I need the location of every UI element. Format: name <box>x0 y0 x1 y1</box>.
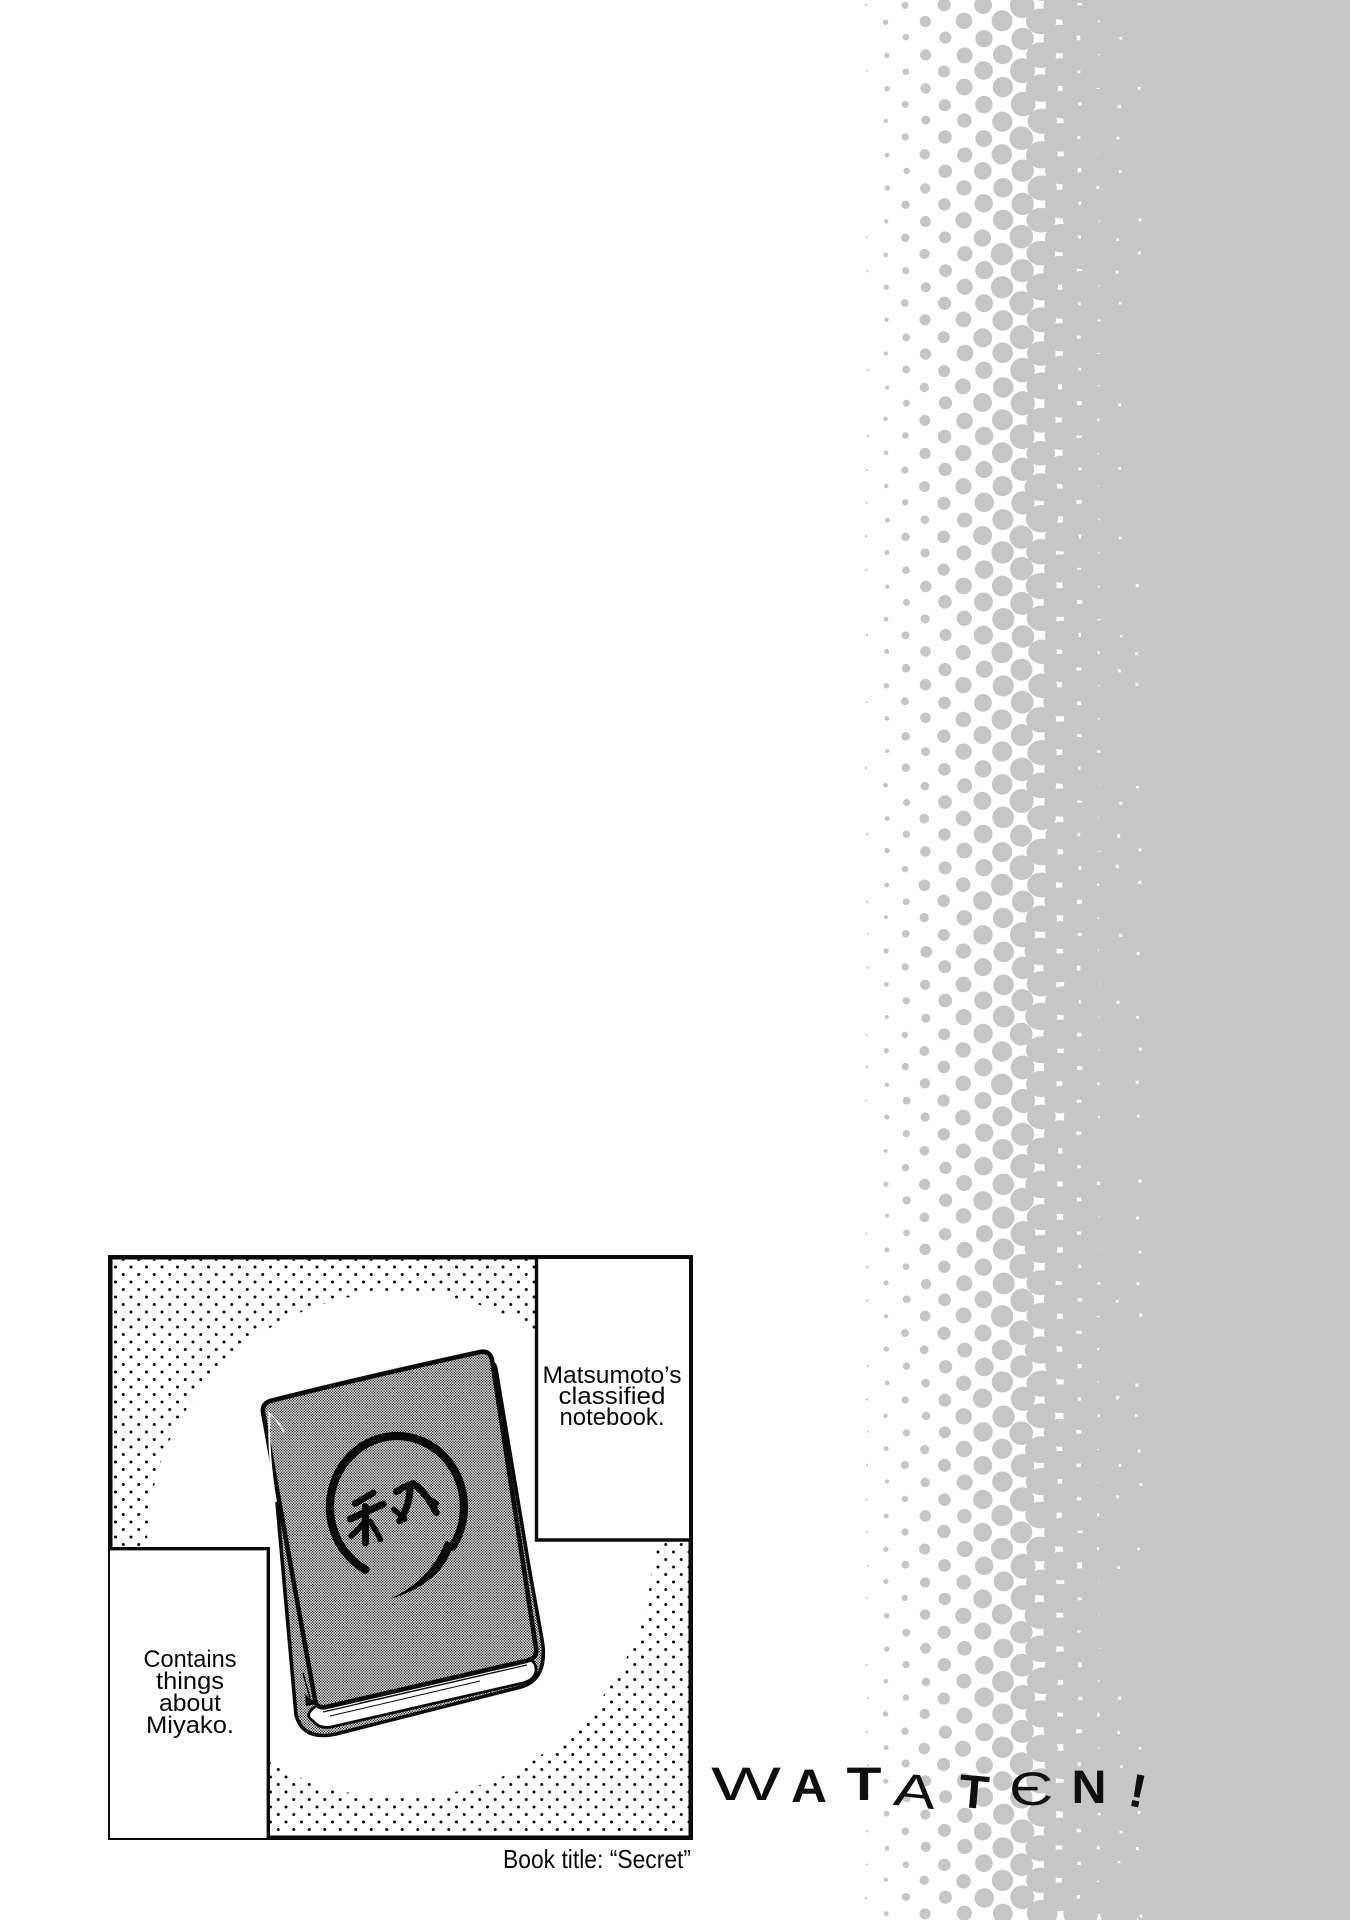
svg-text:N: N <box>1072 1760 1107 1813</box>
svg-text:A: A <box>791 1759 827 1812</box>
svg-text:Є: Є <box>1009 1762 1053 1815</box>
svg-text:T: T <box>957 1764 992 1819</box>
svg-text:Book title: “Secret”: Book title: “Secret” <box>503 1844 691 1874</box>
svg-text:A: A <box>891 1762 939 1819</box>
svg-text:notebook.: notebook. <box>560 1404 665 1431</box>
svg-text:W: W <box>711 1757 782 1810</box>
svg-text:T: T <box>847 1757 882 1810</box>
svg-text:Miyako.: Miyako. <box>146 1712 234 1739</box>
